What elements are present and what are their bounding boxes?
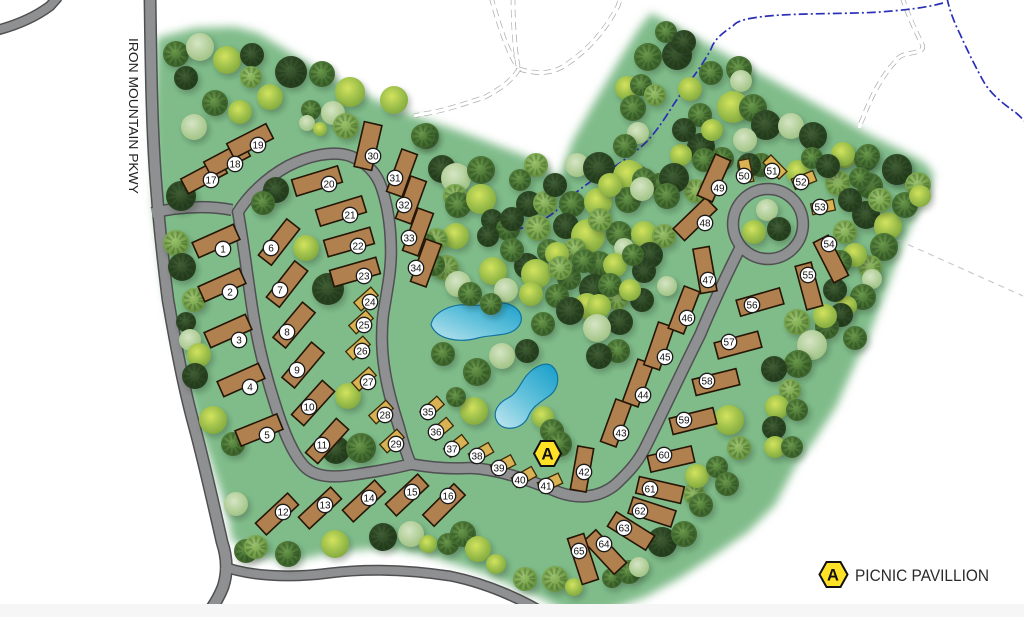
svg-text:46: 46	[681, 314, 693, 325]
svg-text:14: 14	[363, 494, 375, 505]
svg-text:63: 63	[618, 524, 630, 535]
svg-text:57: 57	[723, 338, 735, 349]
svg-text:53: 53	[814, 203, 826, 214]
svg-text:PICNIC PAVILLION: PICNIC PAVILLION	[855, 567, 989, 585]
svg-text:50: 50	[738, 172, 750, 183]
svg-text:23: 23	[358, 272, 370, 283]
svg-text:IRON MOUNTAIN PKWY: IRON MOUNTAIN PKWY	[126, 38, 140, 195]
svg-text:7: 7	[277, 286, 283, 297]
svg-text:28: 28	[379, 411, 391, 422]
svg-text:10: 10	[303, 403, 315, 414]
svg-text:1: 1	[220, 245, 226, 256]
svg-text:47: 47	[702, 276, 714, 287]
svg-text:58: 58	[701, 377, 713, 388]
svg-text:36: 36	[430, 428, 442, 439]
svg-text:43: 43	[615, 429, 627, 440]
svg-text:15: 15	[406, 488, 418, 499]
svg-text:62: 62	[634, 507, 646, 518]
svg-text:26: 26	[356, 347, 368, 358]
svg-text:12: 12	[277, 508, 289, 519]
svg-text:48: 48	[699, 219, 711, 230]
svg-text:24: 24	[364, 298, 376, 309]
svg-text:34: 34	[410, 264, 422, 275]
svg-text:29: 29	[390, 440, 402, 451]
svg-text:45: 45	[659, 353, 671, 364]
svg-text:18: 18	[229, 160, 241, 171]
svg-text:16: 16	[442, 492, 454, 503]
svg-text:44: 44	[637, 391, 649, 402]
svg-text:35: 35	[422, 408, 434, 419]
svg-text:19: 19	[252, 141, 264, 152]
svg-text:56: 56	[746, 301, 758, 312]
svg-text:41: 41	[540, 482, 552, 493]
svg-text:54: 54	[823, 240, 835, 251]
svg-text:65: 65	[573, 547, 585, 558]
svg-text:37: 37	[446, 445, 458, 456]
svg-text:5: 5	[264, 431, 270, 442]
svg-text:38: 38	[471, 452, 483, 463]
svg-text:8: 8	[284, 328, 290, 339]
svg-text:13: 13	[319, 501, 331, 512]
svg-text:25: 25	[358, 321, 370, 332]
svg-text:40: 40	[514, 476, 526, 487]
svg-text:64: 64	[598, 540, 610, 551]
svg-text:51: 51	[766, 167, 778, 178]
svg-text:59: 59	[678, 416, 690, 427]
svg-text:4: 4	[247, 383, 253, 394]
svg-text:3: 3	[236, 336, 242, 347]
svg-text:21: 21	[344, 211, 356, 222]
svg-text:17: 17	[205, 176, 217, 187]
svg-text:22: 22	[352, 242, 364, 253]
svg-text:42: 42	[578, 468, 590, 479]
svg-text:30: 30	[367, 152, 379, 163]
svg-text:11: 11	[317, 441, 328, 452]
svg-text:61: 61	[644, 485, 656, 496]
svg-text:60: 60	[658, 451, 670, 462]
svg-text:A: A	[541, 445, 553, 464]
svg-text:49: 49	[713, 184, 725, 195]
svg-text:33: 33	[403, 234, 415, 245]
svg-text:27: 27	[362, 378, 374, 389]
svg-text:39: 39	[493, 464, 505, 475]
svg-text:55: 55	[802, 271, 814, 282]
svg-text:9: 9	[294, 366, 300, 377]
svg-text:32: 32	[398, 201, 410, 212]
svg-text:20: 20	[323, 180, 335, 191]
svg-text:2: 2	[227, 288, 233, 299]
svg-text:31: 31	[389, 174, 401, 185]
svg-text:A: A	[827, 567, 839, 585]
svg-text:52: 52	[795, 178, 807, 189]
svg-text:6: 6	[268, 244, 274, 255]
